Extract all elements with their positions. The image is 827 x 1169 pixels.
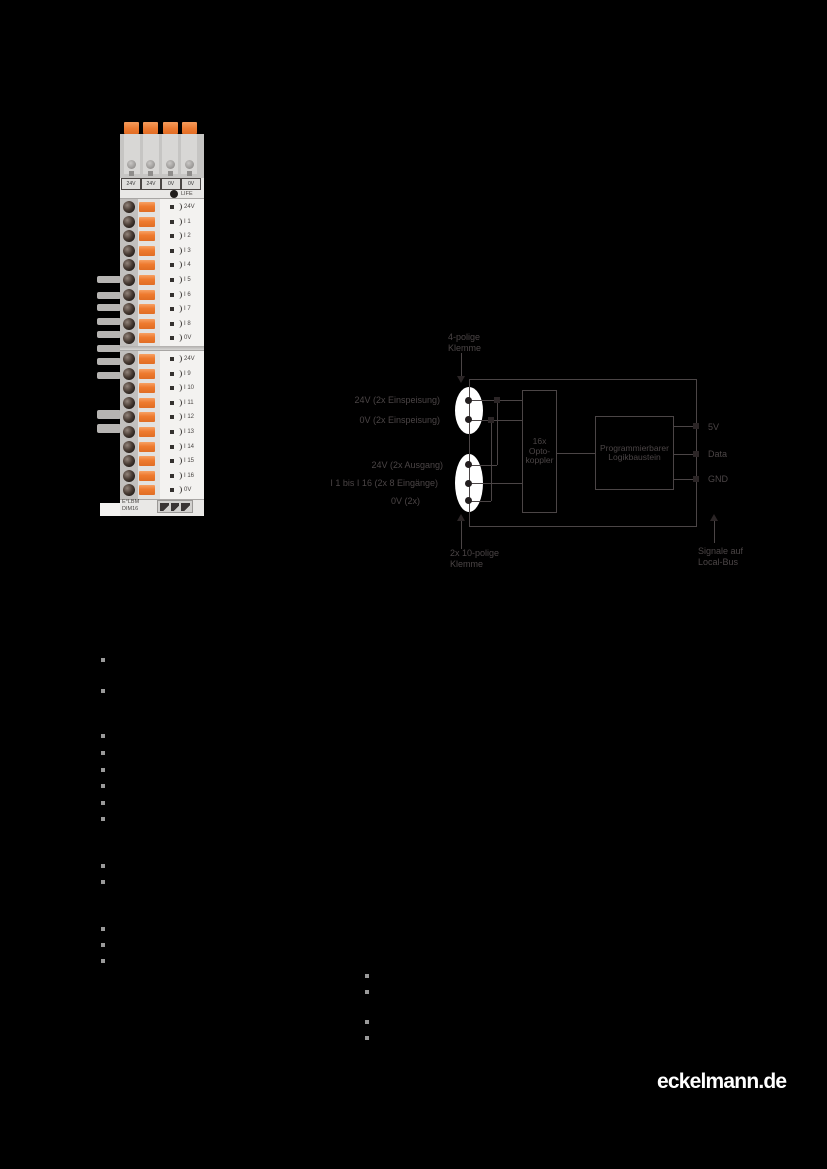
channel-label: I 11 xyxy=(184,400,194,406)
terminal-row: I 10 xyxy=(120,382,204,395)
bullet-marker xyxy=(101,689,105,693)
led-window-icon xyxy=(176,247,182,255)
terminal-row: 0V xyxy=(120,332,204,345)
led-window-icon xyxy=(176,428,182,436)
terminal-hole-icon xyxy=(123,426,135,438)
orange-connector-cap xyxy=(182,122,197,134)
channel-led-icon xyxy=(170,372,174,376)
channel-led-icon xyxy=(170,488,174,492)
terminal-clamp-icon xyxy=(139,275,155,285)
terminal-clamp-icon xyxy=(139,319,155,329)
terminal-hole-icon xyxy=(123,484,135,496)
channel-label: I 15 xyxy=(184,458,194,464)
terminal-row: I 4 xyxy=(120,259,204,272)
bullet-marker xyxy=(365,1036,369,1040)
led-window-icon xyxy=(176,261,182,269)
terminal-hole-icon xyxy=(123,382,135,394)
channel-led-icon xyxy=(170,205,174,209)
label-line: Local-Bus xyxy=(698,557,738,567)
label-24v-ausgang: 24V (2x Ausgang) xyxy=(371,460,443,471)
housing-notch xyxy=(187,171,192,176)
power-terminal-labels: 24V24V0V0V xyxy=(121,178,201,190)
label-0v-2x: 0V (2x) xyxy=(391,496,420,507)
terminal-hole-icon xyxy=(123,274,135,286)
bullet-marker xyxy=(101,751,105,755)
terminal-hole-icon xyxy=(123,411,135,423)
junction-square xyxy=(494,397,500,403)
terminal-hole-icon xyxy=(123,230,135,242)
channel-label: I 9 xyxy=(184,371,191,377)
terminal-row: 24V xyxy=(120,201,204,214)
led-window-icon xyxy=(176,370,182,378)
terminal-clamp-icon xyxy=(139,485,155,495)
device-label-line1: E°LBM xyxy=(122,499,139,505)
led-window-icon xyxy=(176,355,182,363)
led-window-icon xyxy=(176,413,182,421)
arrow-up-icon xyxy=(457,514,465,521)
terminal-clamp-icon xyxy=(139,304,155,314)
logo-glyph xyxy=(171,503,180,511)
optocoupler-box: 16x Opto- koppler xyxy=(522,390,557,513)
led-window-icon xyxy=(176,276,182,284)
channel-label: I 14 xyxy=(184,444,194,450)
housing-notch xyxy=(168,171,173,176)
terminal-clamp-icon xyxy=(139,398,155,408)
led-window-icon xyxy=(176,457,182,465)
terminal-dot xyxy=(465,416,472,423)
label-data: Data xyxy=(708,449,727,460)
terminal-dot xyxy=(465,497,472,504)
channel-label: I 1 xyxy=(184,219,191,225)
terminal-hole-icon xyxy=(123,216,135,228)
channel-led-icon xyxy=(170,263,174,267)
label-24v-einspeisung: 24V (2x Einspeisung) xyxy=(354,395,440,406)
channel-label: I 2 xyxy=(184,233,191,239)
bullet-marker xyxy=(101,959,105,963)
terminal-hole-icon xyxy=(123,441,135,453)
bullet-marker xyxy=(101,658,105,662)
housing-notch xyxy=(129,171,134,176)
channel-label: I 3 xyxy=(184,248,191,254)
channel-led-icon xyxy=(170,357,174,361)
wire-0v-in xyxy=(469,420,522,421)
terminal-hole-icon xyxy=(123,368,135,380)
document-page: 24V24V0V0V LIFE 24VI 1I 2I 3I 4I 5I 6I 7… xyxy=(0,0,827,1169)
logic-device-box: Programmierbarer Logikbaustein xyxy=(595,416,674,490)
bullet-marker xyxy=(101,864,105,868)
terminal-clamp-icon xyxy=(139,202,155,212)
channel-led-icon xyxy=(170,234,174,238)
terminal-clamp-icon xyxy=(139,246,155,256)
terminal-hole-icon xyxy=(123,397,135,409)
arrow-up-icon xyxy=(710,514,718,521)
terminal-clamp-icon xyxy=(139,456,155,466)
bullet-marker xyxy=(101,927,105,931)
label-5v: 5V xyxy=(708,422,719,433)
channel-led-icon xyxy=(170,415,174,419)
bullet-marker xyxy=(101,784,105,788)
device-type-label: E°LBM DIM16 xyxy=(122,499,139,512)
manufacturer-logo-icon xyxy=(157,500,193,513)
channel-led-icon xyxy=(170,430,174,434)
led-window-icon xyxy=(176,291,182,299)
channel-led-icon xyxy=(170,293,174,297)
junction-square xyxy=(488,417,494,423)
label-line: Klemme xyxy=(448,343,481,353)
eckelmann-logo: eckelmann.de xyxy=(657,1070,786,1094)
logo-glyph xyxy=(160,503,169,511)
terminal-row: I 7 xyxy=(120,303,204,316)
wire-0v-out xyxy=(469,501,491,502)
label-inputs: I 1 bis I 16 (2x 8 Eingänge) xyxy=(330,478,438,489)
label-4pole-terminal: 4-polige Klemme xyxy=(448,332,481,353)
screw-icon xyxy=(185,160,194,169)
terminal-hole-icon xyxy=(123,303,135,315)
terminal-row: I 5 xyxy=(120,274,204,287)
led-window-icon xyxy=(176,334,182,342)
channel-led-icon xyxy=(170,322,174,326)
logic-line2: Logikbaustein xyxy=(608,453,660,463)
terminal-clamp-icon xyxy=(139,260,155,270)
channel-led-icon xyxy=(170,401,174,405)
terminal-row: I 3 xyxy=(120,245,204,258)
screw-icon xyxy=(127,160,136,169)
terminal-row: I 1 xyxy=(120,216,204,229)
terminal-hole-icon xyxy=(123,201,135,213)
terminal-clamp-icon xyxy=(139,442,155,452)
label-10pole-terminal: 2x 10-polige Klemme xyxy=(450,548,499,569)
bullet-marker xyxy=(101,801,105,805)
terminal-clamp-icon xyxy=(139,231,155,241)
terminal-hole-icon xyxy=(123,455,135,467)
terminal-row: I 16 xyxy=(120,470,204,483)
terminal-row: 24V xyxy=(120,353,204,366)
label-line: 4-polige xyxy=(448,332,480,342)
label-line: Signale auf xyxy=(698,546,743,556)
label-0v-einspeisung: 0V (2x Einspeisung) xyxy=(359,415,440,426)
channel-led-icon xyxy=(170,278,174,282)
orange-connector-cap xyxy=(124,122,139,134)
led-window-icon xyxy=(176,486,182,494)
terminal-block-2: 24VI 9I 10I 11I 12I 13I 14I 15I 160V xyxy=(120,350,204,500)
bullet-marker xyxy=(101,880,105,884)
life-led-icon xyxy=(170,190,178,198)
led-window-icon xyxy=(176,443,182,451)
wire-0v-link xyxy=(491,420,492,501)
led-window-icon xyxy=(176,399,182,407)
terminal-clamp-icon xyxy=(139,412,155,422)
power-terminal-cell: 0V xyxy=(181,178,201,190)
led-window-icon xyxy=(176,472,182,480)
orange-connector-cap xyxy=(143,122,158,134)
channel-label: I 5 xyxy=(184,277,191,283)
channel-led-icon xyxy=(170,474,174,478)
arrow-line-bottom-right xyxy=(714,521,715,543)
screw-icon xyxy=(166,160,175,169)
terminal-clamp-icon xyxy=(139,369,155,379)
orange-connector-cap xyxy=(163,122,178,134)
led-window-icon xyxy=(176,305,182,313)
terminal-clamp-icon xyxy=(139,333,155,343)
channel-label: 0V xyxy=(184,487,191,493)
terminal-clamp-icon xyxy=(139,383,155,393)
life-label: LIFE xyxy=(181,191,193,197)
housing-notch xyxy=(148,171,153,176)
terminal-row: I 6 xyxy=(120,289,204,302)
terminal-hole-icon xyxy=(123,289,135,301)
channel-led-icon xyxy=(170,307,174,311)
channel-led-icon xyxy=(170,220,174,224)
channel-led-icon xyxy=(170,459,174,463)
bullet-marker xyxy=(101,768,105,772)
channel-led-icon xyxy=(170,386,174,390)
terminal-row: I 11 xyxy=(120,397,204,410)
channel-label: I 10 xyxy=(184,385,194,391)
terminal-clamp-icon xyxy=(139,217,155,227)
bullet-marker xyxy=(101,817,105,821)
terminal-block-1: 24VI 1I 2I 3I 4I 5I 6I 7I 80V xyxy=(120,198,204,348)
wire-24v-out xyxy=(469,465,497,466)
wire-inputs xyxy=(469,483,522,484)
terminal-clamp-icon xyxy=(139,427,155,437)
terminal-clamp-icon xyxy=(139,354,155,364)
label-gnd: GND xyxy=(708,474,728,485)
arrow-line-bottom-left xyxy=(461,521,462,549)
device-label-line2: DIM16 xyxy=(122,506,138,512)
terminal-hole-icon xyxy=(123,470,135,482)
terminal-dot xyxy=(465,461,472,468)
bus-pin-gnd xyxy=(693,476,699,482)
terminal-row: I 9 xyxy=(120,368,204,381)
label-local-bus: Signale auf Local-Bus xyxy=(698,546,743,567)
channel-label: I 13 xyxy=(184,429,194,435)
led-window-icon xyxy=(176,203,182,211)
channel-led-icon xyxy=(170,249,174,253)
terminal-hole-icon xyxy=(123,318,135,330)
arrow-line-top xyxy=(461,353,462,377)
terminal-hole-icon xyxy=(123,259,135,271)
channel-label: I 12 xyxy=(184,414,194,420)
terminal-row: I 15 xyxy=(120,455,204,468)
terminal-clamp-icon xyxy=(139,290,155,300)
terminal-row: I 2 xyxy=(120,230,204,243)
bus-pin-data xyxy=(693,451,699,457)
terminal-row: I 8 xyxy=(120,318,204,331)
label-line: 2x 10-polige xyxy=(450,548,499,558)
channel-label: I 6 xyxy=(184,292,191,298)
label-line: Klemme xyxy=(450,559,483,569)
terminal-clamp-icon xyxy=(139,471,155,481)
terminal-dot xyxy=(465,397,472,404)
led-window-icon xyxy=(176,320,182,328)
terminal-row: I 12 xyxy=(120,411,204,424)
channel-label: 24V xyxy=(184,356,195,362)
arrow-down-icon xyxy=(457,376,465,383)
bullet-marker xyxy=(365,990,369,994)
terminal-hole-icon xyxy=(123,245,135,257)
led-window-icon xyxy=(176,218,182,226)
wire-opto-logic xyxy=(557,453,595,454)
module-top-housing xyxy=(120,134,204,178)
terminal-dot xyxy=(465,480,472,487)
power-terminal-cell: 24V xyxy=(141,178,161,190)
channel-label: 0V xyxy=(184,335,191,341)
led-window-icon xyxy=(176,384,182,392)
bullet-marker xyxy=(101,943,105,947)
terminal-hole-icon xyxy=(123,332,135,344)
bus-pin-5v xyxy=(693,423,699,429)
channel-led-icon xyxy=(170,445,174,449)
power-terminal-cell: 0V xyxy=(161,178,181,190)
wire-24v-link xyxy=(497,400,498,465)
opto-line3: koppler xyxy=(526,456,554,466)
bullet-marker xyxy=(365,974,369,978)
channel-led-icon xyxy=(170,336,174,340)
channel-label: I 4 xyxy=(184,262,191,268)
terminal-row: I 14 xyxy=(120,441,204,454)
bullet-marker xyxy=(365,1020,369,1024)
terminal-row: 0V xyxy=(120,484,204,497)
channel-label: I 7 xyxy=(184,306,191,312)
terminal-hole-icon xyxy=(123,353,135,365)
led-window-icon xyxy=(176,232,182,240)
terminal-row: I 13 xyxy=(120,426,204,439)
channel-label: I 8 xyxy=(184,321,191,327)
bullet-marker xyxy=(101,734,105,738)
power-terminal-cell: 24V xyxy=(121,178,141,190)
channel-label: I 16 xyxy=(184,473,194,479)
logo-glyph xyxy=(181,503,190,511)
channel-label: 24V xyxy=(184,204,195,210)
